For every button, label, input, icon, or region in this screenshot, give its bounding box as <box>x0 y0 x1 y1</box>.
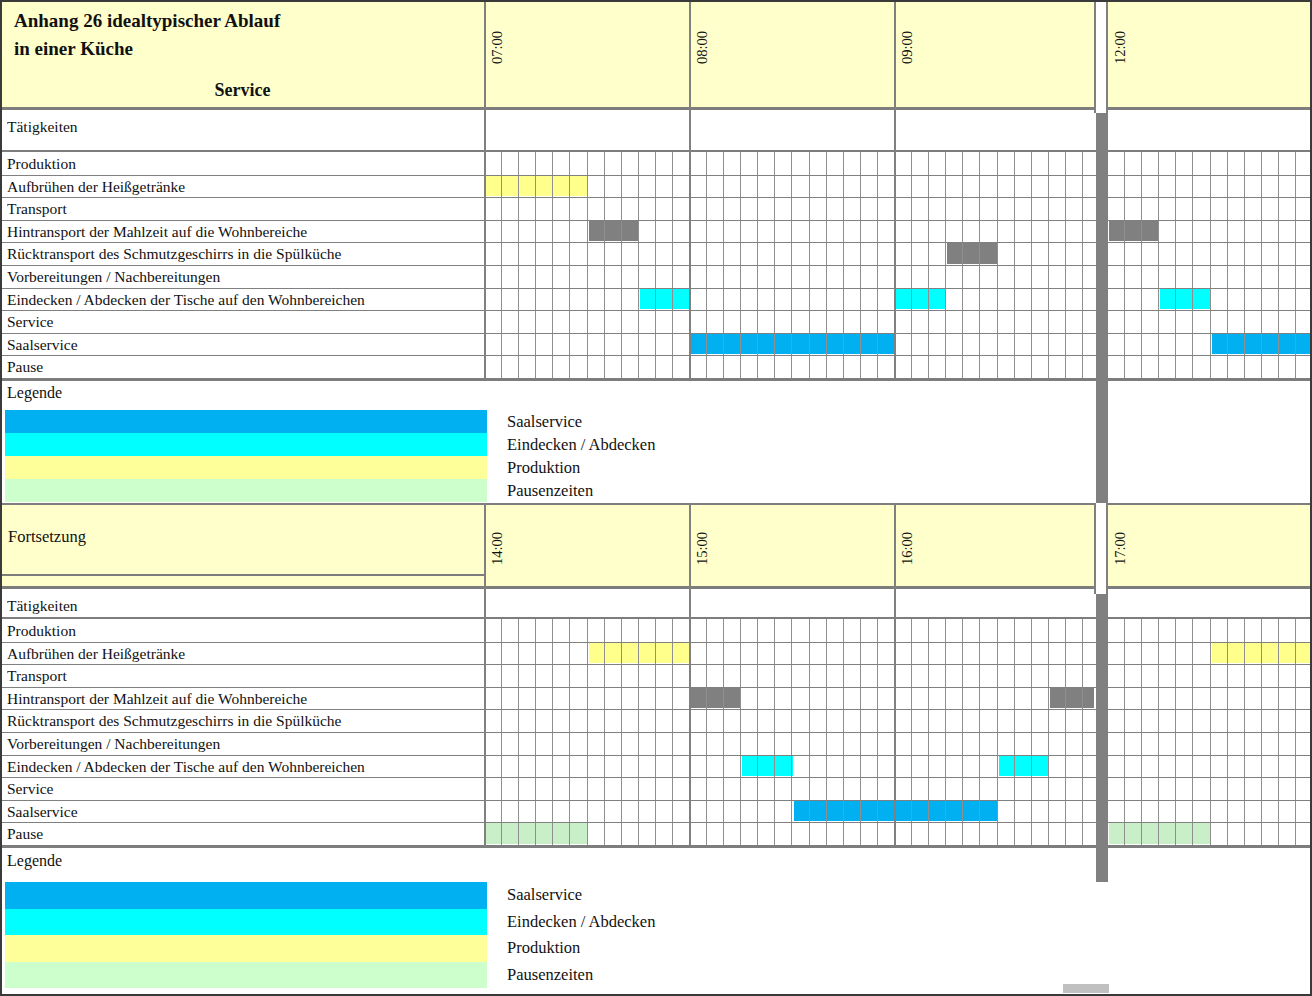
row-divider <box>0 355 1312 356</box>
legend-swatch-produktion <box>5 935 487 962</box>
legend-label-pausenzeiten: Pausenzeiten <box>507 481 593 501</box>
chart-bottom-border <box>0 845 1312 848</box>
grid-strip <box>1108 687 1310 710</box>
grid-strip <box>485 687 1094 710</box>
legend-swatch-eindecken-abdecken <box>5 433 487 456</box>
label-column-separator <box>484 503 486 845</box>
time-label-1600: 16:00 <box>899 532 916 565</box>
row-label-service: Service <box>7 780 479 799</box>
grid-strip <box>485 310 1094 333</box>
grid-strip <box>1108 664 1310 687</box>
grid-strip <box>485 709 1094 732</box>
grid-strip <box>485 822 1094 845</box>
grid-strip <box>485 333 1094 356</box>
grid-strip <box>1108 800 1310 823</box>
row-label-service: Service <box>7 313 479 332</box>
row-divider <box>0 822 1312 823</box>
grid-strip <box>1108 619 1310 642</box>
row-divider <box>0 709 1312 710</box>
legend-label-produktion: Produktion <box>507 938 580 958</box>
row-label-hintransport-der-mahlzeit-auf-die-wohnbereiche: Hintransport der Mahlzeit auf die Wohnbe… <box>7 223 479 242</box>
grid-strip <box>485 152 1094 175</box>
grid-strip <box>1108 822 1310 845</box>
hour-line <box>689 503 691 845</box>
legend-swatch-produktion <box>5 456 487 479</box>
grid-strip <box>1108 220 1310 243</box>
grid-strip <box>1108 732 1310 755</box>
grid-strip <box>1108 310 1310 333</box>
row-label-saalservice: Saalservice <box>7 336 479 355</box>
row-label-transport: Transport <box>7 200 479 219</box>
row-divider <box>0 242 1312 243</box>
axis-break-bar <box>1096 113 1108 503</box>
row-label-r-cktransport-des-schmutzgeschirrs-in-die-sp-lk-che: Rücktransport des Schmutzgeschirrs in di… <box>7 712 479 731</box>
row-label-t-tigkeiten: Tätigkeiten <box>7 597 479 616</box>
grid-strip <box>1108 333 1310 356</box>
grid-strip <box>1108 709 1310 732</box>
row-label-aufbr-hen-der-hei-getr-nke: Aufbrühen der Heißgetränke <box>7 645 479 664</box>
grid-strip <box>485 732 1094 755</box>
grid-strip <box>1108 175 1310 198</box>
legend-swatch-saalservice <box>5 410 487 433</box>
hour-line <box>689 2 691 378</box>
legend-swatch-pausenzeiten <box>5 479 487 502</box>
grid-strip <box>485 619 1094 642</box>
time-label-1400: 14:00 <box>489 532 506 565</box>
legend-title: Legende <box>7 384 62 402</box>
row-label-eindecken-abdecken-der-tische-auf-den-wohnbereichen: Eindecken / Abdecken der Tische auf den … <box>7 758 479 777</box>
row-divider <box>0 197 1312 198</box>
grid-strip <box>485 175 1094 198</box>
row-divider-thick <box>0 150 1312 152</box>
row-divider <box>0 175 1312 176</box>
grid-strip <box>1108 777 1310 800</box>
grid-strip <box>1108 265 1310 288</box>
grid-strip <box>485 777 1094 800</box>
legend-swatch-pausenzeiten <box>5 962 487 989</box>
chart-bottom-border <box>0 378 1312 381</box>
schedule-page: Anhang 26 idealtypischer Ablauf in einer… <box>0 0 1312 996</box>
grid-strip <box>485 242 1094 265</box>
legend-label-pausenzeiten: Pausenzeiten <box>507 965 593 985</box>
grid-strip <box>485 288 1094 311</box>
row-divider <box>0 777 1312 778</box>
legend-swatch-saalservice <box>5 882 487 909</box>
row-divider <box>0 333 1312 334</box>
row-label-produktion: Produktion <box>7 155 479 174</box>
legend-label-eindecken-abdecken: Eindecken / Abdecken <box>507 912 655 932</box>
grid-strip <box>485 642 1094 665</box>
hour-line <box>894 2 896 378</box>
grid-strip <box>485 664 1094 687</box>
time-label-0800: 08:00 <box>694 31 711 64</box>
axis-break-bar <box>1096 594 1108 882</box>
row-divider <box>0 310 1312 311</box>
row-label-vorbereitungen-nachbereitungen: Vorbereitungen / Nachbereitungen <box>7 735 479 754</box>
grid-strip <box>1108 242 1310 265</box>
row-label-transport: Transport <box>7 667 479 686</box>
row-divider <box>0 732 1312 733</box>
row-divider <box>0 664 1312 665</box>
row-label-hintransport-der-mahlzeit-auf-die-wohnbereiche: Hintransport der Mahlzeit auf die Wohnbe… <box>7 690 479 709</box>
row-label-produktion: Produktion <box>7 622 479 641</box>
grid-strip <box>485 197 1094 220</box>
hour-line <box>894 503 896 845</box>
row-divider <box>0 755 1312 756</box>
row-label-aufbr-hen-der-hei-getr-nke: Aufbrühen der Heißgetränke <box>7 178 479 197</box>
row-label-t-tigkeiten: Tätigkeiten <box>7 118 479 151</box>
grid-strip <box>1108 755 1310 778</box>
grid-strip <box>1108 152 1310 175</box>
grid-strip <box>1108 288 1310 311</box>
time-label-1700: 17:00 <box>1112 532 1129 565</box>
grid-strip <box>485 220 1094 243</box>
legend-label-saalservice: Saalservice <box>507 885 582 905</box>
row-label-r-cktransport-des-schmutzgeschirrs-in-die-sp-lk-che: Rücktransport des Schmutzgeschirrs in di… <box>7 245 479 264</box>
grid-strip <box>485 755 1094 778</box>
time-label-1500: 15:00 <box>694 532 711 565</box>
time-label-1200: 12:00 <box>1112 31 1129 64</box>
grid-strip <box>1108 197 1310 220</box>
row-label-eindecken-abdecken-der-tische-auf-den-wohnbereichen: Eindecken / Abdecken der Tische auf den … <box>7 291 479 310</box>
legend-label-produktion: Produktion <box>507 458 580 478</box>
break-bar-stub <box>1063 984 1109 993</box>
legend-title: Legende <box>7 852 62 870</box>
gantt-chart-layer: TätigkeitenProduktionAufbrühen der Heißg… <box>0 0 1312 996</box>
legend-swatch-eindecken-abdecken <box>5 909 487 936</box>
row-divider-thick <box>0 617 1312 619</box>
row-label-saalservice: Saalservice <box>7 803 479 822</box>
label-column-separator <box>484 2 486 378</box>
row-divider <box>0 265 1312 266</box>
row-label-pause: Pause <box>7 358 479 377</box>
grid-strip <box>485 265 1094 288</box>
row-label-vorbereitungen-nachbereitungen: Vorbereitungen / Nachbereitungen <box>7 268 479 287</box>
row-label-pause: Pause <box>7 825 479 844</box>
row-divider <box>0 800 1312 801</box>
axis-break-gap <box>1094 2 1108 113</box>
row-divider <box>0 220 1312 221</box>
row-divider <box>0 687 1312 688</box>
row-divider <box>0 288 1312 289</box>
axis-break-gap <box>1094 503 1108 594</box>
row-divider <box>0 642 1312 643</box>
grid-strip <box>1108 642 1310 665</box>
legend-label-saalservice: Saalservice <box>507 412 582 432</box>
time-label-0900: 09:00 <box>899 31 916 64</box>
grid-strip <box>1108 355 1310 378</box>
legend-label-eindecken-abdecken: Eindecken / Abdecken <box>507 435 655 455</box>
grid-strip <box>485 355 1094 378</box>
time-label-0700: 07:00 <box>489 31 506 64</box>
grid-strip <box>485 800 1094 823</box>
